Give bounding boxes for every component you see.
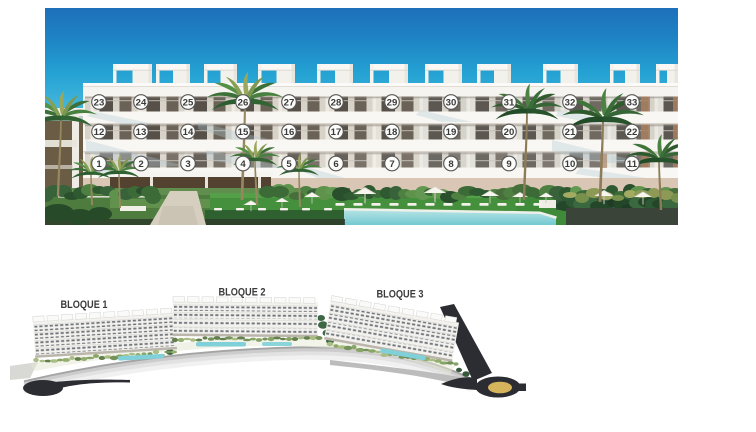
- svg-text:28: 28: [331, 97, 342, 108]
- svg-text:24: 24: [136, 97, 147, 108]
- svg-text:8: 8: [448, 159, 454, 170]
- svg-text:27: 27: [284, 97, 295, 108]
- svg-text:16: 16: [284, 127, 295, 138]
- svg-text:22: 22: [627, 127, 638, 138]
- svg-text:11: 11: [627, 159, 638, 170]
- svg-text:21: 21: [565, 127, 576, 138]
- svg-text:25: 25: [183, 97, 194, 108]
- svg-text:32: 32: [565, 97, 576, 108]
- svg-text:15: 15: [238, 127, 249, 138]
- svg-text:BLOQUE 2: BLOQUE 2: [219, 287, 266, 299]
- svg-text:13: 13: [136, 127, 147, 138]
- svg-text:1: 1: [96, 159, 102, 170]
- svg-text:2: 2: [138, 159, 143, 170]
- svg-text:17: 17: [331, 127, 342, 138]
- svg-text:26: 26: [238, 97, 249, 108]
- svg-text:9: 9: [506, 159, 511, 170]
- svg-text:14: 14: [183, 127, 194, 138]
- svg-text:12: 12: [94, 127, 105, 138]
- svg-text:23: 23: [94, 97, 105, 108]
- svg-text:29: 29: [387, 97, 398, 108]
- svg-text:20: 20: [504, 127, 515, 138]
- svg-text:BLOQUE 1: BLOQUE 1: [61, 299, 108, 311]
- svg-text:7: 7: [389, 159, 394, 170]
- svg-text:31: 31: [504, 97, 515, 108]
- svg-text:5: 5: [286, 159, 292, 170]
- svg-text:33: 33: [627, 97, 638, 108]
- svg-text:6: 6: [333, 159, 338, 170]
- svg-text:30: 30: [446, 97, 457, 108]
- svg-text:10: 10: [565, 159, 576, 170]
- svg-text:4: 4: [240, 159, 246, 170]
- svg-text:18: 18: [387, 127, 398, 138]
- svg-text:BLOQUE 3: BLOQUE 3: [377, 289, 424, 301]
- svg-text:3: 3: [185, 159, 190, 170]
- svg-text:19: 19: [446, 127, 457, 138]
